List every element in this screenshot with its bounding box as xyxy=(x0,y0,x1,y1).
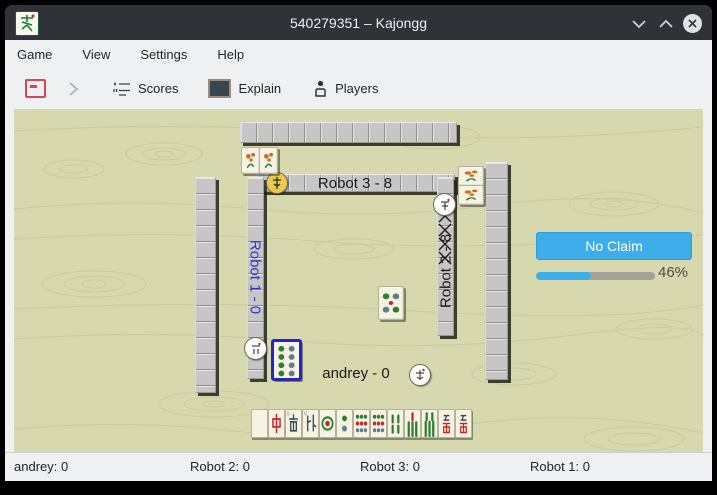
hand-tile-wind-south[interactable]: S xyxy=(285,409,302,438)
chevron-right-icon xyxy=(68,81,79,97)
claim-progress-fill xyxy=(536,272,591,280)
minimize-button[interactable] xyxy=(628,12,650,34)
status-bar: andrey: 0 Robot 2: 0 Robot 3: 0 Robot 1:… xyxy=(5,452,712,481)
robot2-score-label: Robot 2 - 8 xyxy=(438,234,455,308)
status-robot2: Robot 2: 0 xyxy=(190,459,250,474)
game-table: Robot 3 - 8 Robot 1 - 0 Robot 2 - 8 andr… xyxy=(14,109,703,452)
robot3-score-label: Robot 3 - 8 xyxy=(257,175,453,192)
maximize-button[interactable] xyxy=(655,12,677,34)
robot1-score-label: Robot 1 - 0 xyxy=(247,240,264,314)
explain-button[interactable]: Explain xyxy=(204,76,285,101)
menu-settings[interactable]: Settings xyxy=(138,45,189,64)
svg-text:S: S xyxy=(286,411,290,418)
wall-top xyxy=(240,122,457,143)
hand-tiles: SN xyxy=(251,409,472,438)
menu-bar: Game View Settings Help xyxy=(5,40,712,68)
hand-tile-blank[interactable] xyxy=(251,409,268,438)
status-robot1: Robot 1: 0 xyxy=(530,459,590,474)
hand-tile-dragon-red[interactable] xyxy=(268,409,285,438)
central-widget: Robot 3 - 8 Robot 1 - 0 Robot 2 - 8 andr… xyxy=(5,109,712,452)
hand-tile-char-5[interactable] xyxy=(438,409,455,438)
hand-tile-bamboo-7[interactable] xyxy=(404,409,421,438)
focused-tile[interactable] xyxy=(272,340,301,380)
svg-text:N: N xyxy=(303,411,307,418)
window-title: 540279351 – Kajongg xyxy=(5,15,712,31)
hand-tile-bamboo-4[interactable] xyxy=(387,409,404,438)
woodgrain-background xyxy=(14,109,703,452)
menu-view[interactable]: View xyxy=(80,45,112,64)
status-robot3: Robot 3: 0 xyxy=(360,459,420,474)
bonus-tile xyxy=(241,147,260,174)
wind-disc-left xyxy=(244,337,267,360)
abort-game-icon xyxy=(25,79,46,98)
no-claim-label: No Claim xyxy=(585,238,643,254)
hand-tile-circle-1[interactable] xyxy=(319,409,336,438)
claim-timeout-progress xyxy=(536,272,655,280)
players-label: Players xyxy=(335,81,378,96)
menu-help[interactable]: Help xyxy=(215,45,246,64)
wall-right xyxy=(485,162,508,380)
toolbar: Scores Explain Players xyxy=(5,68,712,110)
hand-tile-wind-north[interactable]: N xyxy=(302,409,319,438)
scores-button[interactable]: Scores xyxy=(109,78,182,100)
title-bar: 540279351 – Kajongg xyxy=(5,5,712,40)
bonus-tile xyxy=(458,185,484,205)
wind-disc-right xyxy=(433,193,456,216)
claim-progress-label: 46% xyxy=(658,264,688,281)
close-button[interactable] xyxy=(681,12,703,34)
wind-disc-bottom xyxy=(409,364,431,386)
bonus-tile xyxy=(259,147,278,174)
hand-tile-circle-9[interactable] xyxy=(353,409,370,438)
bonus-tile xyxy=(458,166,484,186)
hand-tile-circle-2[interactable] xyxy=(336,409,353,438)
explain-label: Explain xyxy=(238,81,281,96)
wall-left xyxy=(195,177,216,393)
scores-icon xyxy=(113,81,131,97)
players-icon xyxy=(313,80,328,98)
close-icon xyxy=(683,14,702,33)
status-andrey: andrey: 0 xyxy=(14,459,68,474)
application-window: 540279351 – Kajongg Game View Settings H… xyxy=(5,5,712,481)
menu-game[interactable]: Game xyxy=(15,45,54,64)
no-claim-button[interactable]: No Claim xyxy=(536,232,692,260)
scores-label: Scores xyxy=(138,81,178,96)
discard-tile[interactable] xyxy=(378,286,404,320)
andrey-score-label: andrey - 0 xyxy=(322,365,390,382)
abort-game-button[interactable] xyxy=(21,76,50,101)
next-button[interactable] xyxy=(64,78,83,100)
hand-tile-bamboo-8[interactable] xyxy=(421,409,438,438)
players-button[interactable]: Players xyxy=(309,77,382,101)
explain-icon xyxy=(208,79,231,98)
hand-tile-circle-9[interactable] xyxy=(370,409,387,438)
hand-tile-char-9[interactable] xyxy=(455,409,472,438)
